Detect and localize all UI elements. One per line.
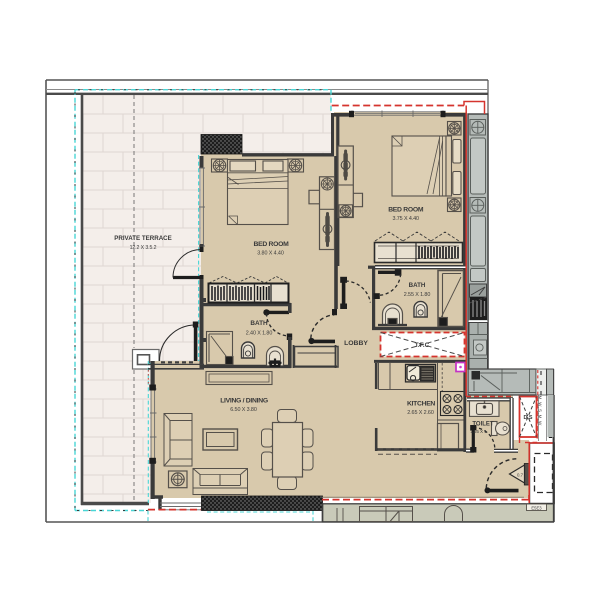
svg-text:PRIVATE TERRACE: PRIVATE TERRACE — [114, 235, 172, 242]
svg-text:BATH: BATH — [250, 320, 268, 327]
svg-text:BED ROOM: BED ROOM — [254, 241, 290, 248]
svg-text:3.75 X 4.40: 3.75 X 4.40 — [392, 216, 419, 222]
svg-text:0.7: 0.7 — [517, 472, 524, 477]
svg-text:E5E3: E5E3 — [531, 505, 542, 510]
svg-text:BATH: BATH — [409, 282, 426, 289]
svg-text:1.55 X 1.: 1.55 X 1. — [470, 429, 488, 434]
svg-text:T.F.C: T.F.C — [415, 342, 430, 349]
svg-text:2.55 X 1.80: 2.55 X 1.80 — [404, 292, 431, 298]
svg-text:3.80 X 4.40: 3.80 X 4.40 — [257, 251, 284, 257]
svg-text:LOBBY: LOBBY — [344, 340, 368, 347]
svg-text:TOILET: TOILET — [472, 422, 494, 428]
svg-text:LIVING / DINING: LIVING / DINING — [220, 398, 268, 405]
svg-text:12.2 X 3.5.2: 12.2 X 3.5.2 — [130, 245, 157, 251]
svg-text:D.S: D.S — [524, 415, 533, 421]
svg-text:KITCHEN: KITCHEN — [407, 401, 435, 408]
svg-text:2.65 X 2.60: 2.65 X 2.60 — [407, 410, 434, 416]
svg-text:2.40 X 1.80: 2.40 X 1.80 — [246, 331, 273, 337]
svg-text:6.50 X 3.80: 6.50 X 3.80 — [230, 407, 257, 413]
svg-text:BED ROOM: BED ROOM — [388, 207, 424, 214]
